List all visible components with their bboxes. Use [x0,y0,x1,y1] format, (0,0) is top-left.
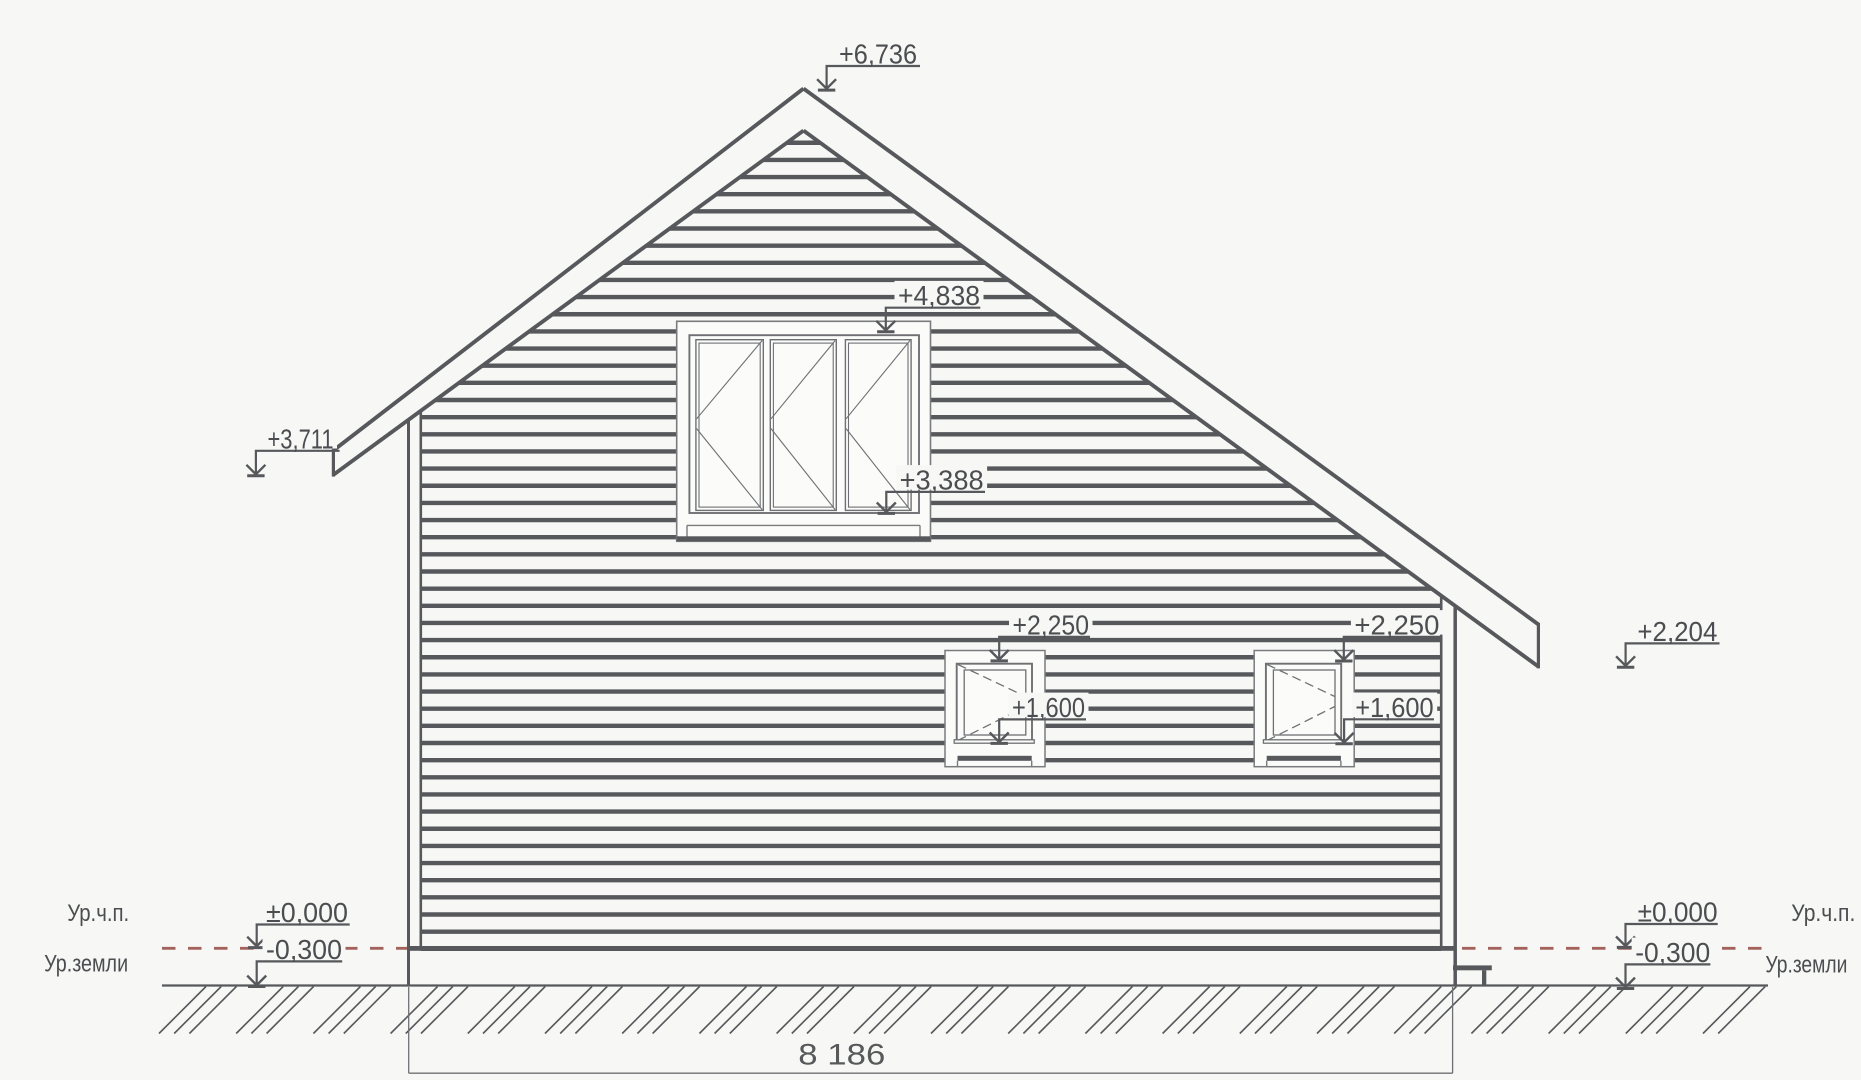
svg-text:+2,204: +2,204 [1637,616,1717,647]
svg-text:+4,838: +4,838 [898,280,980,311]
svg-text:+1,600: +1,600 [1355,692,1434,723]
svg-text:±0,000: ±0,000 [266,897,348,928]
svg-text:8 186: 8 186 [798,1038,885,1071]
svg-text:Ур.земли: Ур.земли [1765,952,1847,979]
svg-text:+2,250: +2,250 [1013,609,1090,640]
svg-text:Ур.ч.п.: Ур.ч.п. [67,900,129,927]
svg-text:Ур.ч.п.: Ур.ч.п. [1791,900,1855,927]
svg-text:+3,388: +3,388 [900,464,984,495]
svg-text:Ур.земли: Ур.земли [44,951,128,978]
svg-text:-0,300: -0,300 [1635,937,1710,968]
svg-text:+6,736: +6,736 [839,39,917,70]
svg-text:+1,600: +1,600 [1012,692,1085,723]
svg-text:+3,711: +3,711 [268,423,334,454]
svg-text:-0,300: -0,300 [266,934,342,965]
svg-text:±0,000: ±0,000 [1638,897,1718,928]
svg-text:+2,250: +2,250 [1354,609,1439,640]
